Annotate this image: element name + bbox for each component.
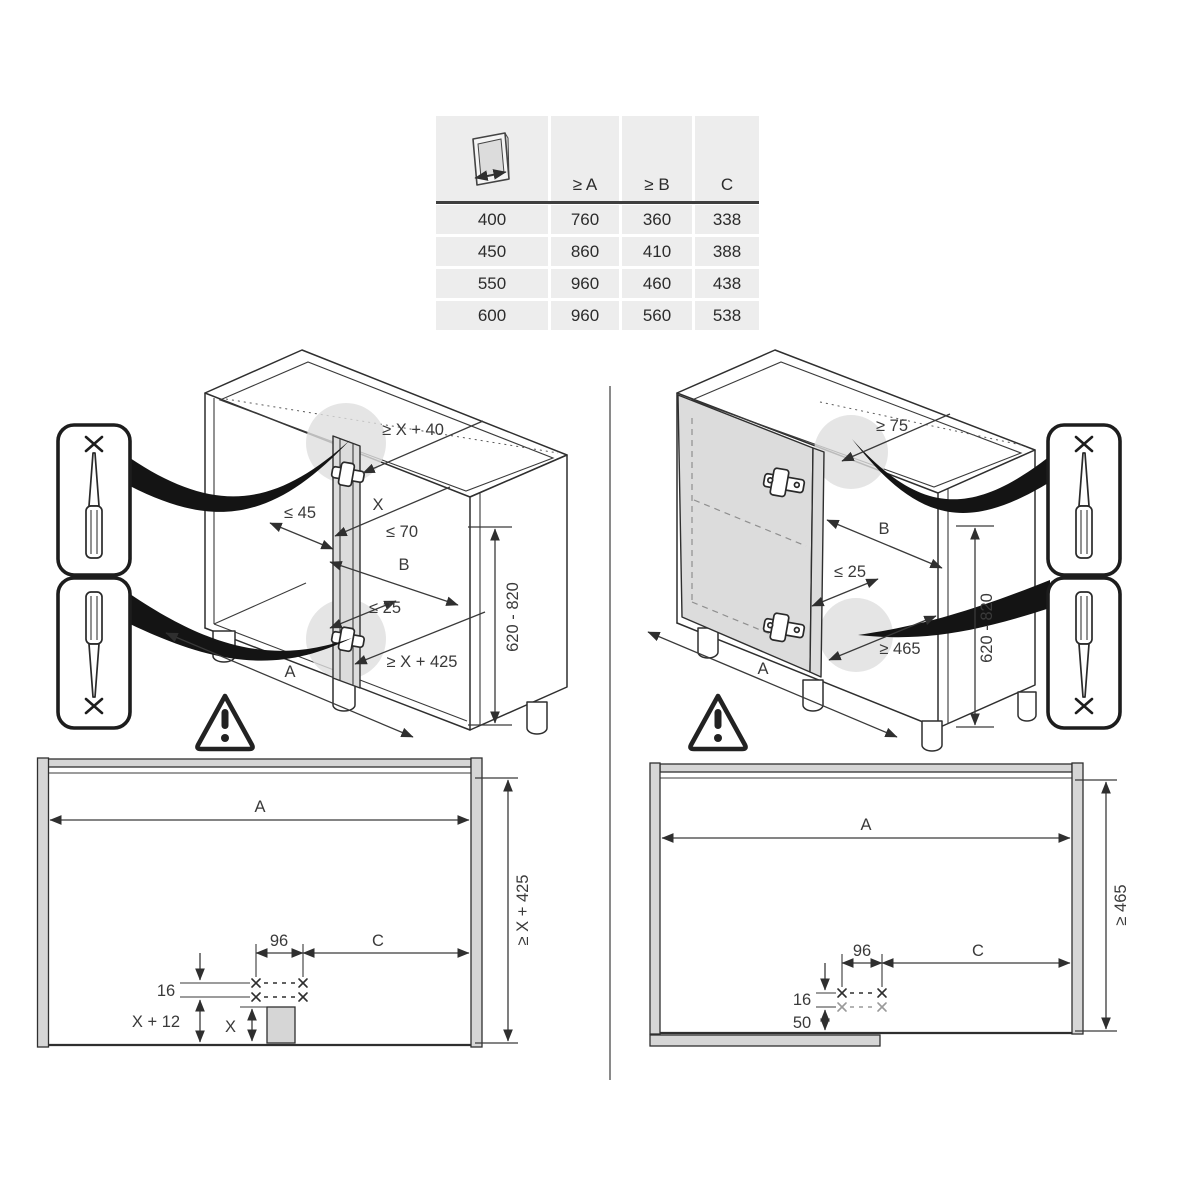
open-door-panel [650,1035,880,1046]
installation-diagram-page: ≥ A ≥ B C 400 760 360 338 450 860 410 38… [0,0,1200,1200]
dim-row-gap: 16 [793,991,811,1009]
dim-height-range: 620 - 820 [504,582,522,652]
dim-c: C [972,942,984,960]
table-cell: 438 [695,269,759,298]
section-divider [609,386,611,1080]
dim-height-range: 620 - 820 [978,593,996,663]
obstacle-block [267,1007,295,1043]
drill-row-1 [838,989,886,997]
col-header-a: ≥ A [551,116,619,202]
dim-a: A [860,816,871,834]
col-header-c: C [695,116,759,202]
carcass-outline [650,763,1083,1046]
dim-bottom-clearance: ≥ X + 425 [387,653,458,671]
dim-max70: ≤ 70 [386,523,418,541]
table-cell: 538 [695,301,759,330]
table-cell: 760 [551,205,619,234]
dim-max25: ≤ 25 [834,563,866,581]
dim-row-gap: 16 [157,982,175,1000]
dim-height: ≥ X + 425 [514,875,532,946]
callout-no-screwdriver-top [58,425,130,575]
callout-no-screwdriver-bottom [58,578,130,728]
bottom-view-right: A ≥ 465 96 C 16 [630,750,1190,1080]
table-cell: 960 [551,301,619,330]
dim-bottom-clearance: ≥ 465 [879,640,920,658]
dim-hole-spacing: 96 [270,932,288,950]
dim-hole-spacing: 96 [853,942,871,960]
table-cell: 550 [436,269,548,298]
dim-a: A [284,663,295,681]
warning-icon [690,696,745,749]
drill-row-2 [252,993,307,1001]
dim-max25: ≤ 25 [369,599,401,617]
bottom-view-left: A ≥ X + 425 96 C [20,750,610,1080]
dim-b: B [398,556,409,574]
dim-bottom-offset: X + 12 [132,1013,180,1031]
cabinet-iso-right: ≥ 75 B ≤ 25 ≥ 465 A 620 - 820 [620,340,1180,760]
dim-b: B [878,520,889,538]
table-cell: 600 [436,301,548,330]
drill-row-2 [838,1003,886,1011]
table-cell: 460 [622,269,692,298]
table-cell: 450 [436,237,548,266]
dimensions: A ≥ X + 425 96 C [50,778,532,1043]
col-header-b: ≥ B [622,116,692,202]
dim-a: A [757,660,768,678]
dim-x: X [372,496,383,514]
table-cell: 388 [695,237,759,266]
table-cell: 338 [695,205,759,234]
dim-height: ≥ 465 [1112,884,1130,925]
table-cell: 860 [551,237,619,266]
spec-table: ≥ A ≥ B C 400 760 360 338 450 860 410 38… [436,116,759,330]
drill-row-1 [252,979,307,987]
door-size-header-cell [436,116,548,202]
table-cell: 560 [622,301,692,330]
table-cell: 400 [436,205,548,234]
dim-top-clearance: ≥ X + 40 [382,421,444,439]
dim-top-clearance: ≥ 75 [876,417,908,435]
table-cell: 960 [551,269,619,298]
callout-no-screwdriver-top [1048,425,1120,575]
dim-c: C [372,932,384,950]
door-width-icon [459,127,525,195]
table-cell: 410 [622,237,692,266]
warning-icon [197,696,252,749]
table-cell: 360 [622,205,692,234]
dim-x: X [225,1018,236,1036]
dim-a: A [254,798,265,816]
dimensions: A ≥ 465 96 C 16 [662,780,1130,1032]
cabinet-iso-left: ≥ X + 40 X ≤ 70 ≤ 45 B ≤ 25 ≥ X + 425 A … [30,340,610,760]
dim-bottom-offset: 50 [793,1014,811,1032]
table-header-rule [436,201,759,204]
callout-no-screwdriver-bottom [1048,578,1120,728]
dim-max45: ≤ 45 [284,504,316,522]
